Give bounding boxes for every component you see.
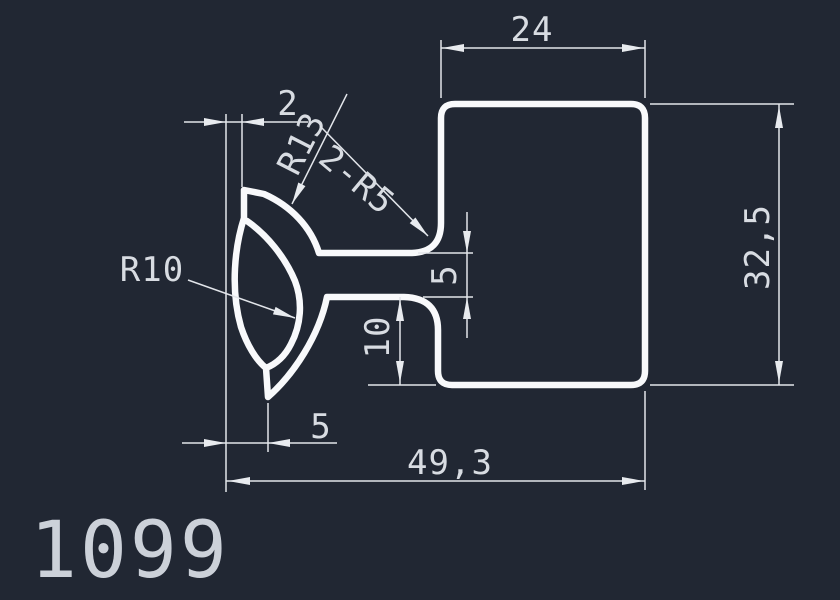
dimension-value: 5 bbox=[310, 407, 331, 447]
part-number: 1099 bbox=[30, 506, 230, 596]
arrowhead-icon bbox=[463, 297, 471, 319]
dim-overall-height: 32,5 bbox=[738, 104, 783, 385]
dim-slot-height: 5 bbox=[425, 212, 471, 338]
dim-overall-width: 49,3 bbox=[226, 443, 645, 485]
cad-drawing-canvas: 2 24 32,5 49,3 5 10 5 bbox=[0, 0, 840, 600]
drawing-svg: 2 24 32,5 49,3 5 10 5 bbox=[0, 0, 840, 600]
arrowhead-icon bbox=[463, 231, 471, 253]
dim-top-width: 24 bbox=[441, 10, 645, 52]
arrowhead-icon bbox=[396, 361, 404, 383]
arrowhead-icon bbox=[442, 44, 464, 52]
callout-text: 2-R5 bbox=[311, 137, 403, 223]
dim-tip-offset: 2 bbox=[184, 84, 308, 126]
arrowhead-icon bbox=[242, 118, 264, 126]
callout-fillets: 2-R5 bbox=[311, 126, 431, 239]
arrowhead-icon bbox=[775, 106, 783, 128]
arrowhead-icon bbox=[622, 477, 644, 485]
callout-text: R10 bbox=[120, 250, 184, 290]
arrowhead-icon bbox=[273, 307, 296, 322]
dim-step-height: 10 bbox=[358, 297, 404, 385]
callout-radius-inner: R10 bbox=[120, 250, 297, 322]
dim-tip-width: 5 bbox=[182, 407, 337, 447]
arrowhead-icon bbox=[775, 361, 783, 383]
arrowhead-icon bbox=[622, 44, 644, 52]
arrowhead-icon bbox=[268, 439, 290, 447]
dimension-value: 5 bbox=[425, 264, 465, 285]
dimension-value: 32,5 bbox=[738, 204, 778, 290]
arrowhead-icon bbox=[204, 439, 226, 447]
arrowhead-icon bbox=[410, 218, 431, 239]
arrowhead-icon bbox=[204, 118, 226, 126]
arrowhead-icon bbox=[288, 183, 305, 206]
groove-inner-arc bbox=[247, 221, 300, 368]
arrowhead-icon bbox=[228, 477, 250, 485]
dimension-value: 49,3 bbox=[407, 443, 493, 483]
dimension-value: 10 bbox=[358, 316, 398, 359]
dimension-value: 24 bbox=[511, 10, 554, 50]
